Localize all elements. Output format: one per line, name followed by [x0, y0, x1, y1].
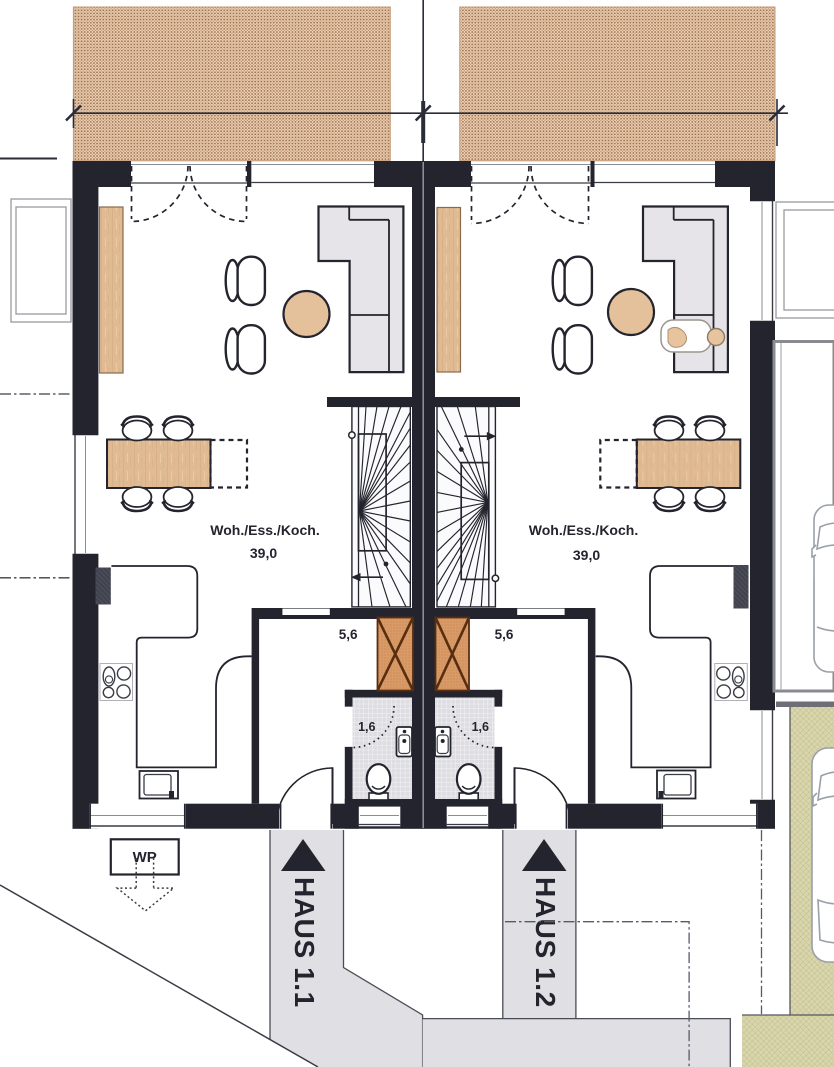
svg-text:39,0: 39,0 [573, 547, 600, 563]
svg-text:39,0: 39,0 [250, 545, 277, 561]
svg-text:Woh./Ess./Koch.: Woh./Ess./Koch. [529, 522, 638, 538]
svg-text:5,6: 5,6 [495, 627, 514, 642]
svg-text:5,6: 5,6 [339, 627, 358, 642]
svg-text:HAUS 1.2: HAUS 1.2 [530, 877, 561, 1008]
svg-text:1,6: 1,6 [472, 720, 489, 734]
svg-text:HAUS 1.1: HAUS 1.1 [289, 877, 320, 1008]
svg-text:1,6: 1,6 [358, 720, 375, 734]
svg-text:Woh./Ess./Koch.: Woh./Ess./Koch. [210, 522, 319, 538]
